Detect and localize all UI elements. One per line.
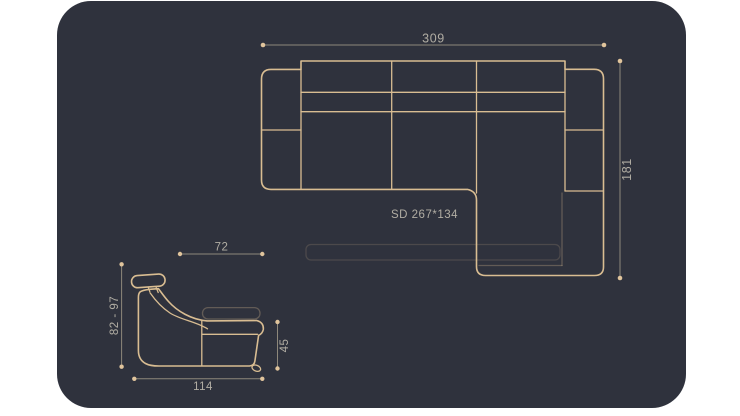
diagram-panel [57,1,686,408]
dimension-endpoint-dot [132,377,136,381]
side-upper-depth-label: 72 [215,242,229,254]
dimension-endpoint-dot [275,366,279,370]
sofa-bed-size-label: SD 267*134 [391,209,458,221]
side-base-depth-label: 114 [193,381,213,393]
dimension-endpoint-dot [178,252,182,256]
side-height-range-label: 82 - 97 [109,296,121,335]
side-seat-height-label: 45 [279,339,291,353]
top-depth-dimension-label: 181 [620,158,634,181]
furniture-dimension-diagram: 309 181 SD 267*134 [0,0,740,416]
dimension-endpoint-dot [260,377,264,381]
diagram-canvas: 309 181 SD 267*134 [0,0,740,416]
dimension-endpoint-dot [260,252,264,256]
dimension-endpoint-dot [618,59,623,64]
dimension-endpoint-dot [275,320,279,324]
dimension-endpoint-dot [618,276,623,281]
dimension-endpoint-dot [119,262,123,266]
dimension-endpoint-dot [602,43,607,48]
top-width-dimension-label: 309 [422,32,445,46]
dimension-endpoint-dot [119,365,123,369]
dimension-endpoint-dot [261,43,266,48]
